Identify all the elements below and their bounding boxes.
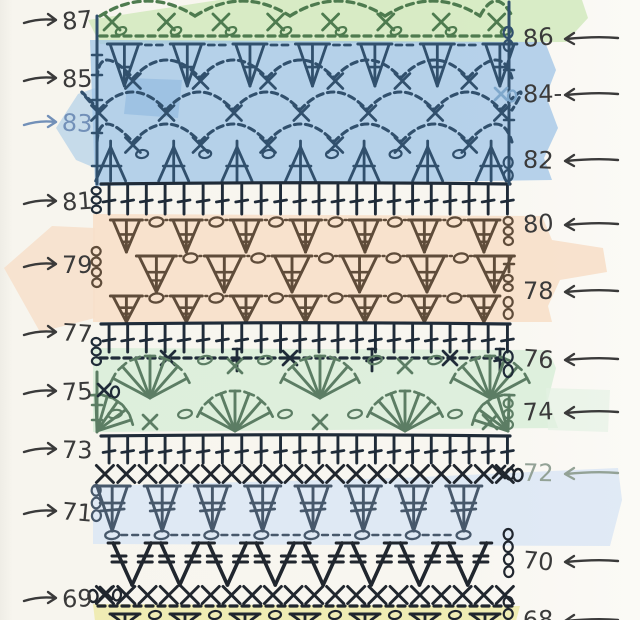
crochet-chart-scan: Hand-drawn crochet stitch chart, rows 68… (0, 0, 640, 620)
row-marker-left-83: 83 (24, 108, 93, 138)
stitch-row-69 (88, 587, 513, 604)
row-number-left-75: 75 (61, 377, 93, 407)
row-marker-left-69: 69 (24, 584, 93, 613)
stitch-row-73 (101, 435, 513, 463)
row-number-right-68: 68 (523, 605, 555, 620)
row-number-left-85: 85 (62, 65, 93, 94)
row-number-left-77: 77 (61, 318, 93, 348)
row-marker-right-84-: 84- (523, 80, 618, 109)
row-number-right-78: 78 (523, 277, 554, 305)
row-marker-right-70: 70 (522, 546, 618, 577)
row-number-left-79: 79 (62, 251, 93, 279)
row-number-right-86: 86 (522, 22, 555, 53)
row-marker-left-75: 75 (24, 377, 93, 407)
row-number-left-81: 81 (61, 187, 93, 217)
row-number-right-74: 74 (522, 397, 554, 427)
row-number-left-73: 73 (62, 436, 93, 465)
row-marker-left-87: 87 (24, 5, 94, 36)
stitch-row-70 (108, 543, 492, 585)
band-orange-left (4, 226, 95, 332)
row-number-right-76: 76 (522, 344, 554, 374)
row-number-left-87: 87 (61, 5, 94, 36)
row-marker-left-81: 81 (24, 187, 94, 217)
row-marker-left-71: 71 (24, 497, 94, 528)
stitch-diagram: 878583817977757371698684-828078767472706… (0, 0, 640, 620)
stitch-row-81 (101, 183, 513, 214)
band-green-mid-right (546, 388, 610, 432)
row-marker-right-82: 82 (522, 145, 618, 175)
row-number-right-84-: 84- (523, 80, 563, 109)
row-marker-right-78: 78 (523, 277, 618, 305)
row-marker-right-80: 80 (522, 209, 618, 239)
row-number-left-71: 71 (61, 497, 94, 528)
row-marker-left-85: 85 (24, 65, 93, 94)
edge-stitches-19 (100, 587, 122, 601)
row-marker-right-76: 76 (522, 344, 618, 374)
row-marker-left-73: 73 (24, 436, 93, 465)
row-number-left-69: 69 (62, 584, 94, 613)
row-number-right-70: 70 (522, 546, 555, 577)
row-number-right-80: 80 (522, 209, 554, 239)
row-number-right-72: 72 (523, 459, 554, 488)
row-number-left-83: 83 (61, 108, 93, 138)
row-number-right-82: 82 (522, 145, 554, 175)
row-marker-right-68: 68 (523, 605, 618, 620)
stitch-row-77 (101, 323, 513, 352)
